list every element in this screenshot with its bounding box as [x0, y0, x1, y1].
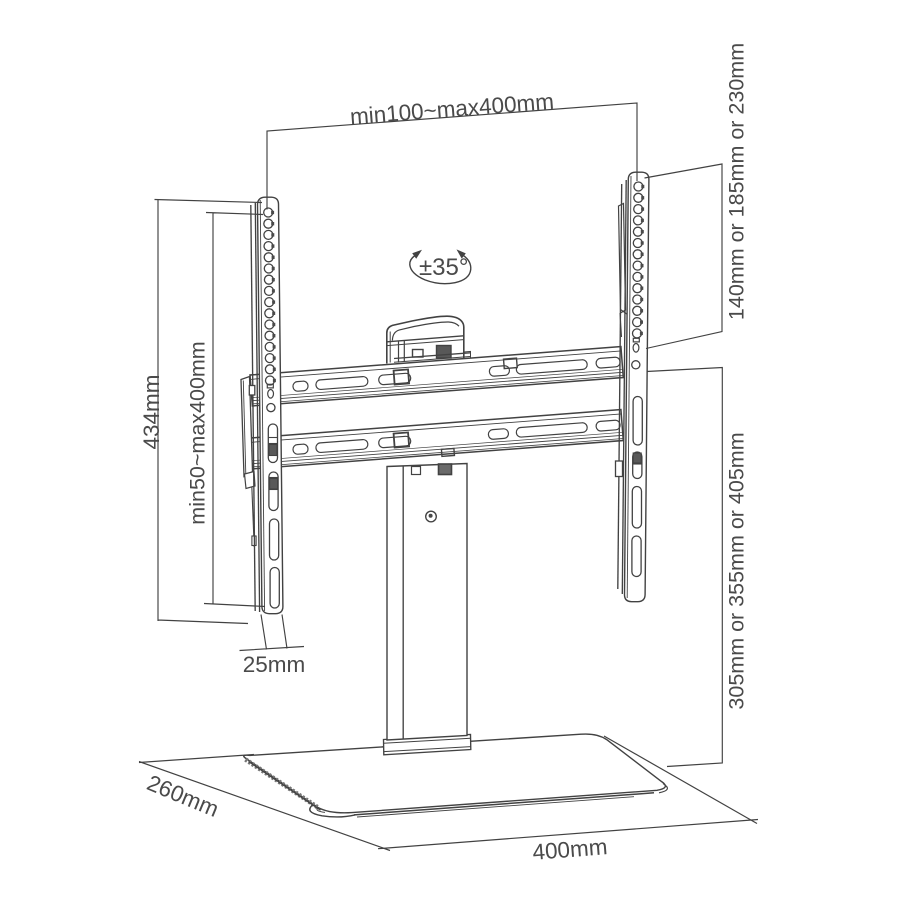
svg-text:260mm: 260mm [143, 770, 222, 822]
svg-text:434mm: 434mm [139, 374, 164, 449]
svg-text:min50~max400mm: min50~max400mm [186, 341, 210, 524]
svg-text:400mm: 400mm [532, 834, 609, 865]
svg-text:±35°: ±35° [419, 254, 468, 281]
svg-text:min100~max400mm: min100~max400mm [349, 89, 555, 130]
svg-text:140mm or 185mm or 230mm: 140mm or 185mm or 230mm [725, 43, 749, 320]
svg-text:305mm or 355mm or 405mm: 305mm or 355mm or 405mm [725, 432, 749, 709]
svg-text:25mm: 25mm [243, 652, 306, 677]
